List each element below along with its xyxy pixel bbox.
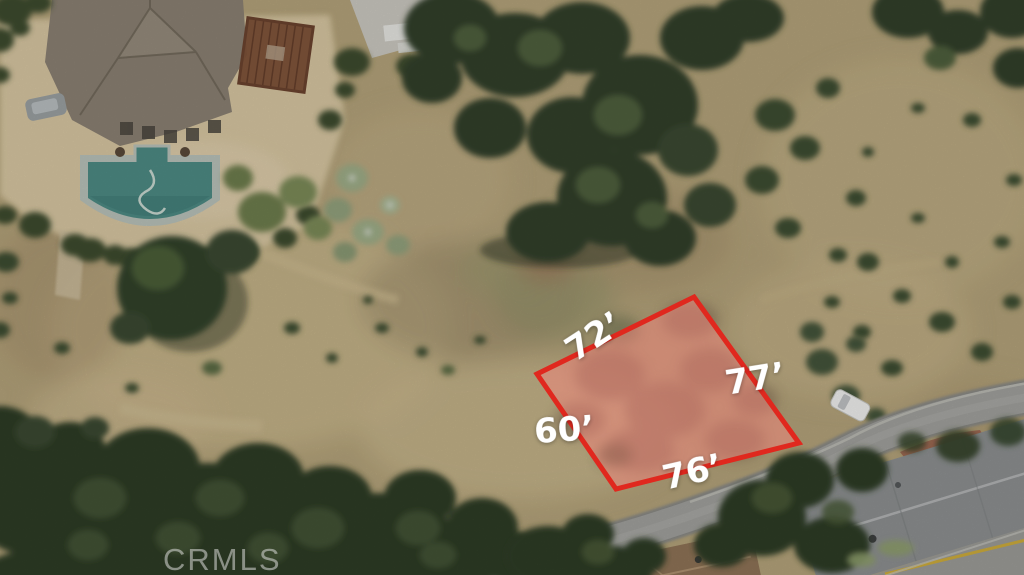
aerial-photo: 72’ 77’ 60’ 76’ CRMLS <box>0 0 1024 575</box>
crmls-watermark: CRMLS <box>163 542 282 575</box>
dimension-label-left: 60’ <box>533 408 596 452</box>
photo-grain <box>0 0 1024 575</box>
aerial-photo-canvas: 72’ 77’ 60’ 76’ CRMLS <box>0 0 1024 575</box>
